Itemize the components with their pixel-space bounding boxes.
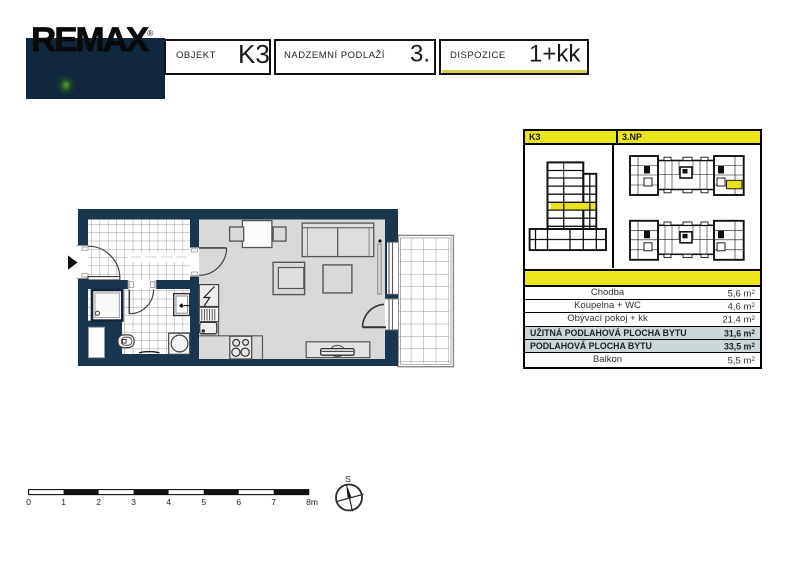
svg-text:8m: 8m <box>306 497 318 507</box>
svg-text:7: 7 <box>271 497 276 507</box>
svg-text:5: 5 <box>201 497 206 507</box>
svg-text:4: 4 <box>166 497 171 507</box>
svg-text:0: 0 <box>26 497 31 507</box>
svg-text:2: 2 <box>96 497 101 507</box>
svg-text:S: S <box>345 474 351 484</box>
svg-text:6: 6 <box>236 497 241 507</box>
svg-text:1: 1 <box>61 497 66 507</box>
svg-text:3: 3 <box>131 497 136 507</box>
